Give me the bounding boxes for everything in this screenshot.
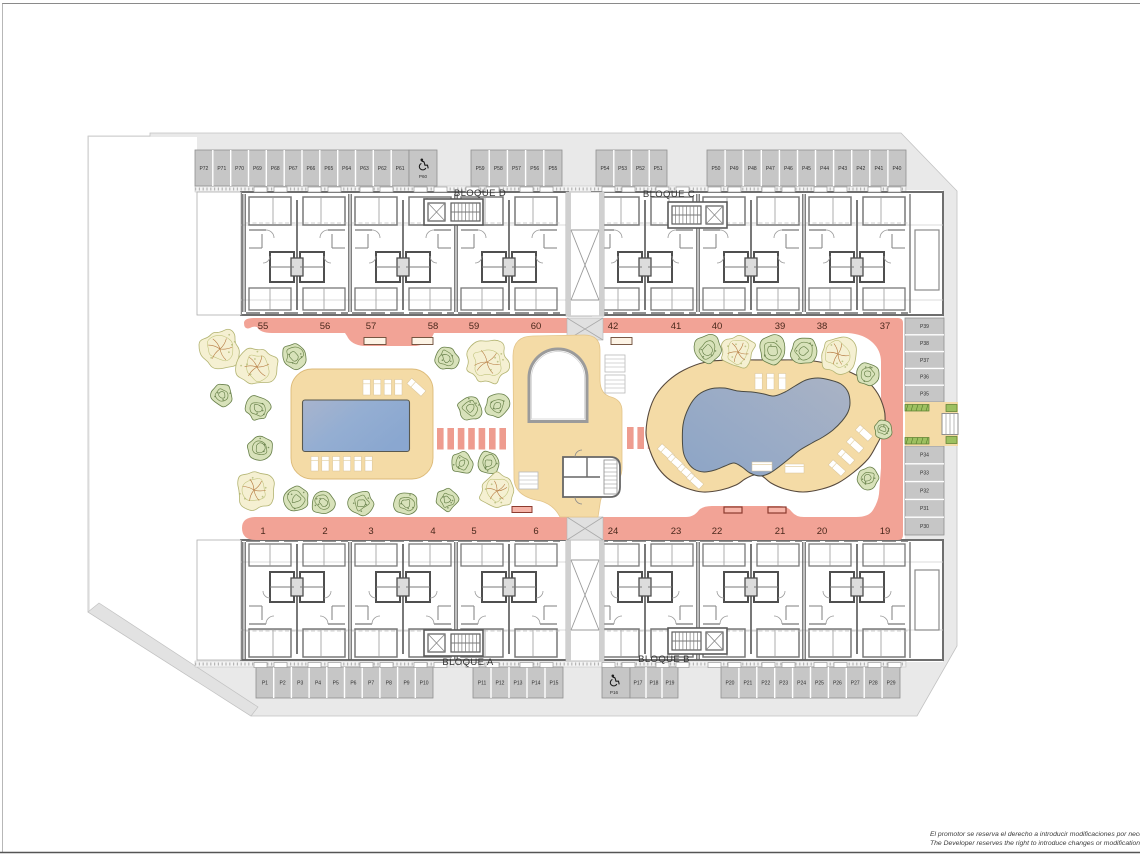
svg-text:3: 3 bbox=[368, 526, 373, 537]
svg-text:P44: P44 bbox=[820, 166, 829, 172]
svg-text:P36: P36 bbox=[920, 375, 929, 381]
svg-text:P64: P64 bbox=[342, 166, 351, 172]
svg-text:P50: P50 bbox=[712, 166, 721, 172]
svg-text:21: 21 bbox=[775, 526, 786, 537]
svg-text:P54: P54 bbox=[600, 166, 609, 172]
svg-text:P28: P28 bbox=[869, 680, 878, 686]
svg-text:P34: P34 bbox=[920, 453, 929, 459]
svg-text:P33: P33 bbox=[920, 471, 929, 477]
svg-text:41: 41 bbox=[671, 321, 682, 332]
svg-text:40: 40 bbox=[712, 321, 723, 332]
svg-text:P41: P41 bbox=[874, 166, 883, 172]
svg-text:P15: P15 bbox=[550, 680, 559, 686]
svg-text:P21: P21 bbox=[743, 680, 752, 686]
svg-text:P57: P57 bbox=[512, 166, 521, 172]
svg-text:56: 56 bbox=[320, 321, 331, 332]
svg-text:P62: P62 bbox=[378, 166, 387, 172]
svg-text:P31: P31 bbox=[920, 506, 929, 512]
svg-text:57: 57 bbox=[366, 321, 377, 332]
svg-text:P43: P43 bbox=[838, 166, 847, 172]
svg-text:P69: P69 bbox=[253, 166, 262, 172]
svg-text:P66: P66 bbox=[306, 166, 315, 172]
svg-text:24: 24 bbox=[608, 526, 619, 537]
svg-text:P60: P60 bbox=[419, 174, 428, 179]
svg-text:P56: P56 bbox=[530, 166, 539, 172]
svg-text:2: 2 bbox=[322, 526, 327, 537]
svg-text:P9: P9 bbox=[403, 680, 409, 686]
svg-text:P8: P8 bbox=[386, 680, 392, 686]
svg-text:6: 6 bbox=[533, 526, 538, 537]
svg-text:P17: P17 bbox=[634, 680, 643, 686]
svg-text:P71: P71 bbox=[217, 166, 226, 172]
svg-text:BLOQUE B: BLOQUE B bbox=[638, 654, 690, 665]
svg-text:58: 58 bbox=[428, 321, 439, 332]
svg-text:P48: P48 bbox=[748, 166, 757, 172]
svg-text:55: 55 bbox=[258, 321, 269, 332]
svg-text:P24: P24 bbox=[797, 680, 806, 686]
svg-text:P40: P40 bbox=[893, 166, 902, 172]
svg-text:P29: P29 bbox=[887, 680, 896, 686]
svg-text:P37: P37 bbox=[920, 358, 929, 364]
svg-text:P13: P13 bbox=[514, 680, 523, 686]
svg-text:P2: P2 bbox=[280, 680, 286, 686]
svg-text:42: 42 bbox=[608, 321, 619, 332]
svg-text:P30: P30 bbox=[920, 524, 929, 530]
svg-text:P19: P19 bbox=[666, 680, 675, 686]
svg-text:P61: P61 bbox=[396, 166, 405, 172]
svg-text:P51: P51 bbox=[654, 166, 663, 172]
svg-text:P55: P55 bbox=[548, 166, 557, 172]
svg-text:38: 38 bbox=[817, 321, 828, 332]
svg-text:P70: P70 bbox=[235, 166, 244, 172]
svg-text:P38: P38 bbox=[920, 341, 929, 347]
svg-text:P59: P59 bbox=[476, 166, 485, 172]
svg-text:P52: P52 bbox=[636, 166, 645, 172]
svg-text:P68: P68 bbox=[271, 166, 280, 172]
svg-text:P39: P39 bbox=[920, 324, 929, 330]
svg-text:BLOQUE C: BLOQUE C bbox=[643, 189, 695, 200]
svg-text:P72: P72 bbox=[199, 166, 208, 172]
svg-text:4: 4 bbox=[430, 526, 435, 537]
svg-text:P67: P67 bbox=[289, 166, 298, 172]
svg-text:P12: P12 bbox=[496, 680, 505, 686]
svg-text:19: 19 bbox=[880, 526, 891, 537]
svg-text:20: 20 bbox=[817, 526, 828, 537]
svg-text:El promotor se reserva el dere: El promotor se reserva el derecho a intr… bbox=[930, 831, 1140, 838]
svg-text:P6: P6 bbox=[350, 680, 356, 686]
svg-text:22: 22 bbox=[712, 526, 723, 537]
svg-text:37: 37 bbox=[880, 321, 891, 332]
svg-text:P11: P11 bbox=[478, 680, 487, 686]
svg-text:59: 59 bbox=[469, 321, 480, 332]
svg-text:P25: P25 bbox=[815, 680, 824, 686]
svg-text:P5: P5 bbox=[333, 680, 339, 686]
svg-text:BLOQUE D: BLOQUE D bbox=[454, 188, 506, 199]
svg-text:P20: P20 bbox=[726, 680, 735, 686]
svg-text:5: 5 bbox=[471, 526, 476, 537]
svg-text:P45: P45 bbox=[802, 166, 811, 172]
svg-text:1: 1 bbox=[260, 526, 265, 537]
svg-text:P7: P7 bbox=[368, 680, 374, 686]
svg-text:P35: P35 bbox=[920, 391, 929, 397]
svg-text:P4: P4 bbox=[315, 680, 321, 686]
svg-text:P18: P18 bbox=[650, 680, 659, 686]
svg-text:P16: P16 bbox=[610, 690, 619, 695]
svg-text:60: 60 bbox=[531, 321, 542, 332]
svg-text:P46: P46 bbox=[784, 166, 793, 172]
svg-text:P10: P10 bbox=[420, 680, 429, 686]
svg-text:P26: P26 bbox=[833, 680, 842, 686]
svg-text:P3: P3 bbox=[297, 680, 303, 686]
svg-text:P23: P23 bbox=[779, 680, 788, 686]
svg-text:P22: P22 bbox=[761, 680, 770, 686]
svg-text:23: 23 bbox=[671, 526, 682, 537]
svg-text:P1: P1 bbox=[262, 680, 268, 686]
svg-text:P32: P32 bbox=[920, 488, 929, 494]
svg-text:P47: P47 bbox=[766, 166, 775, 172]
svg-text:The Developer reserves the rig: The Developer reserves the right to intr… bbox=[930, 840, 1140, 847]
svg-text:P14: P14 bbox=[532, 680, 541, 686]
svg-text:BLOQUE A: BLOQUE A bbox=[442, 657, 494, 668]
svg-text:P58: P58 bbox=[494, 166, 503, 172]
svg-text:P42: P42 bbox=[856, 166, 865, 172]
svg-text:P27: P27 bbox=[851, 680, 860, 686]
svg-text:P65: P65 bbox=[324, 166, 333, 172]
svg-text:P63: P63 bbox=[360, 166, 369, 172]
svg-text:P53: P53 bbox=[618, 166, 627, 172]
svg-text:P49: P49 bbox=[730, 166, 739, 172]
svg-text:39: 39 bbox=[775, 321, 786, 332]
